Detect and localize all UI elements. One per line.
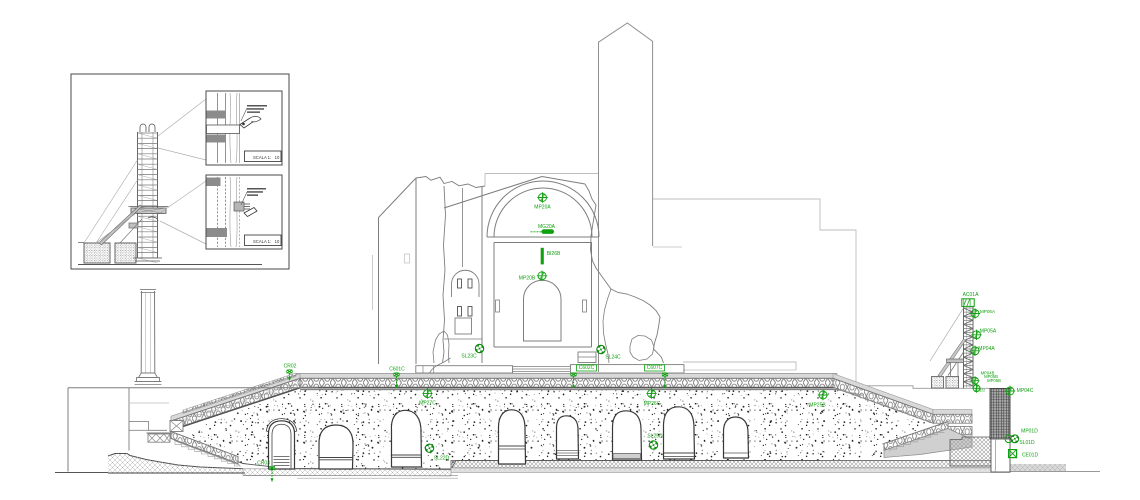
svg-text:C601C: C601C	[389, 366, 405, 372]
svg-text:MP04A: MP04A	[978, 346, 995, 352]
svg-text:SL24C: SL24C	[605, 354, 621, 360]
svg-text:SCALA 1:: SCALA 1:	[253, 155, 271, 160]
svg-text:MP26C: MP26C	[644, 401, 661, 407]
svg-text:MP06B: MP06B	[987, 378, 1001, 383]
svg-text:MG20A: MG20A	[538, 224, 556, 230]
svg-text:AC01A: AC01A	[963, 292, 980, 298]
svg-text:CE01D: CE01D	[1022, 453, 1039, 459]
svg-text:MP20A: MP20A	[534, 205, 551, 211]
svg-text:SCALA 1:: SCALA 1:	[253, 239, 271, 244]
svg-text:MP06A: MP06A	[980, 309, 996, 314]
svg-text:CR03: CR03	[257, 460, 270, 466]
svg-text:10: 10	[275, 155, 280, 160]
svg-text:MP05A: MP05A	[980, 328, 997, 334]
svg-text:MP04C: MP04C	[1017, 388, 1034, 394]
svg-text:SL25D: SL25D	[647, 433, 663, 439]
svg-text:MP27C: MP27C	[419, 401, 436, 407]
svg-text:MP20B: MP20B	[519, 276, 536, 282]
svg-text:SL01D: SL01D	[1019, 440, 1035, 446]
svg-text:C602C: C602C	[579, 365, 595, 371]
svg-text:C822: C822	[977, 389, 985, 393]
svg-text:MP01D: MP01D	[1021, 429, 1038, 435]
svg-text:CR02: CR02	[284, 363, 297, 369]
svg-text:SL23C: SL23C	[461, 354, 477, 360]
svg-text:10: 10	[275, 239, 280, 244]
svg-text:MP25B: MP25B	[809, 403, 826, 409]
svg-text:BI26B: BI26B	[547, 251, 561, 257]
svg-text:SL22D: SL22D	[434, 456, 450, 462]
svg-text:C607C: C607C	[647, 365, 663, 371]
